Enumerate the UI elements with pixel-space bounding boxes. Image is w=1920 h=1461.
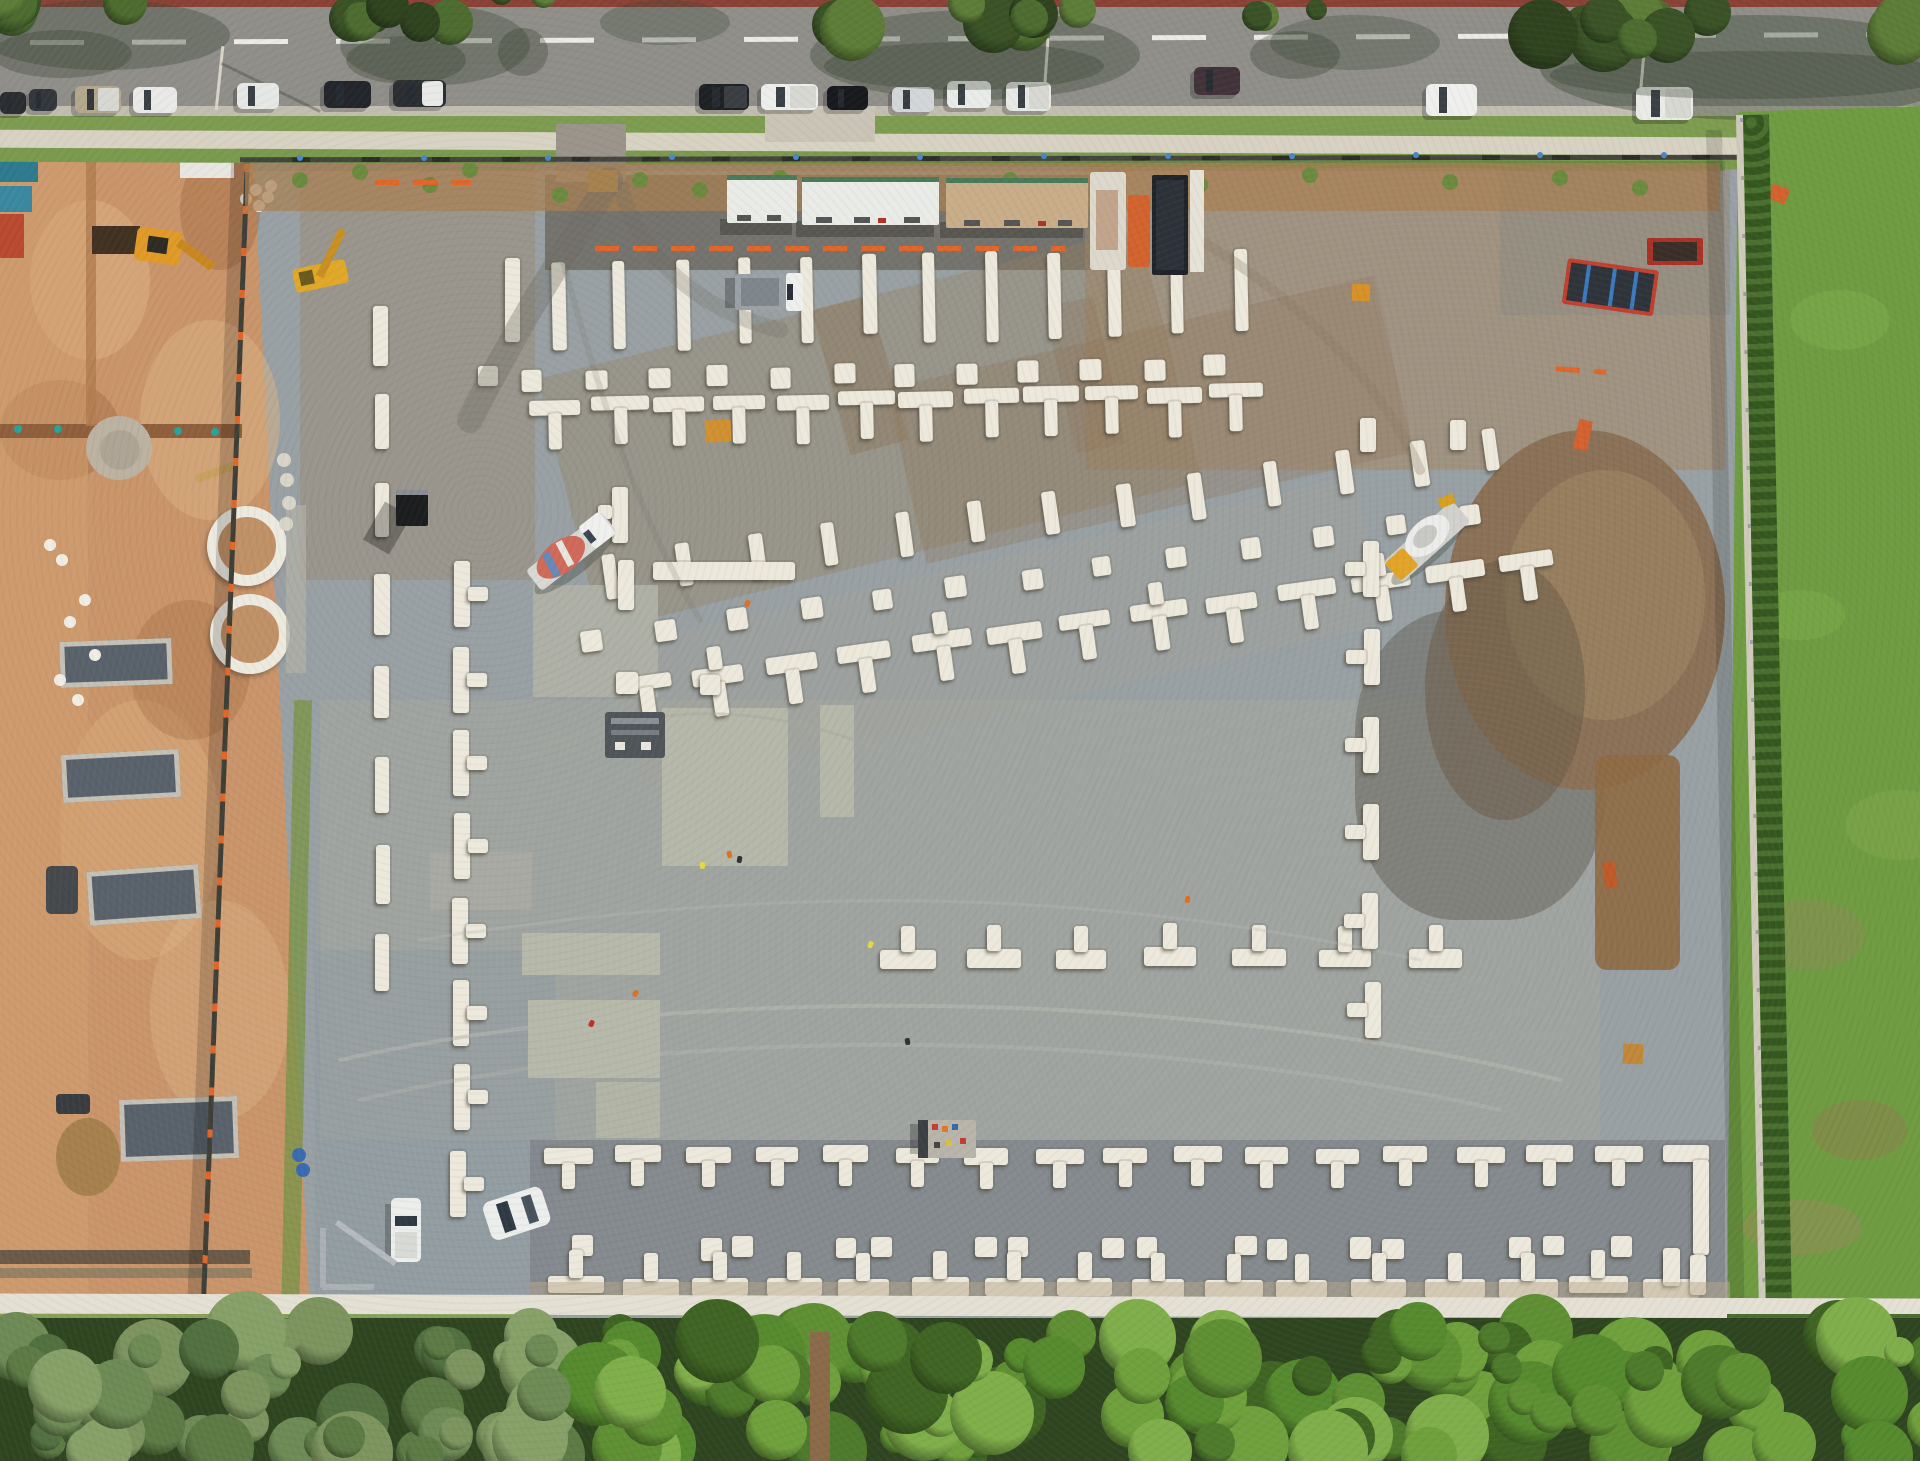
flatbed-truck-workers-part: [918, 1120, 928, 1158]
red-skip-bin-part: [1653, 242, 1697, 261]
site-trailer-2-part: [878, 218, 886, 223]
orange-plate-3: [705, 420, 732, 443]
site-trailer-3-tan-part: [1058, 220, 1072, 226]
tree-shadow: [1250, 31, 1340, 79]
car-windshield: [336, 84, 344, 105]
black-equipment-box-part: [396, 490, 428, 526]
tree-crown: [1292, 1356, 1332, 1396]
flatbed-truck-workers-part: [960, 1138, 966, 1144]
orange-plate-1: [1352, 284, 1371, 302]
site-trailer-1-part: [727, 175, 797, 180]
tree-crown: [746, 1400, 807, 1461]
car-windshield: [407, 83, 415, 104]
tree-crown: [269, 1347, 301, 1379]
barrier-rails-corner-part: [322, 1284, 374, 1290]
car-windshield: [1439, 87, 1447, 113]
car: [237, 83, 279, 109]
pipe-storage-truck-part: [1128, 195, 1150, 267]
site-trailer-1-part: [737, 215, 751, 221]
car-windshield: [144, 90, 151, 110]
site-trailer-2-part: [816, 217, 832, 223]
orange-barrier-row-1: [595, 246, 1065, 251]
tree-crown: [910, 1322, 982, 1394]
white-ute-slab-part: [395, 1232, 417, 1258]
flatbed-truck-workers-part: [932, 1124, 938, 1130]
ute-tray: [1029, 84, 1050, 109]
ute-tray: [724, 86, 747, 108]
orange-plate-2: [1623, 1044, 1644, 1065]
flatbed-truck-workers-part: [952, 1124, 958, 1130]
worker-person: [726, 851, 732, 859]
car: [324, 81, 371, 108]
car: [29, 89, 57, 111]
car-windshield: [36, 92, 40, 108]
timber-pallet-gate: [588, 170, 618, 192]
tree-crown: [1183, 1319, 1263, 1399]
tree-crown: [1194, 1423, 1235, 1461]
worker-person: [904, 1038, 910, 1046]
car-windshield: [87, 89, 94, 110]
car: [133, 87, 177, 113]
car-hood: [422, 81, 443, 106]
tree-crown: [28, 1349, 103, 1424]
tree-crown: [1715, 1353, 1772, 1410]
rebar-bending-station-part: [641, 742, 651, 750]
car: [1426, 84, 1477, 116]
worker-person: [700, 862, 705, 869]
tree-crown: [525, 1334, 558, 1367]
site-trailer-2-part: [802, 177, 939, 182]
tree-crown: [1389, 1302, 1447, 1360]
car-windshield: [7, 95, 11, 111]
tree-crown: [1114, 1348, 1170, 1404]
black-equipment-box-part: [396, 490, 428, 495]
tree-crown: [847, 1311, 907, 1371]
tree-canopy: [1242, 1, 1272, 31]
car: [827, 86, 868, 110]
site-trailer-2-part: [904, 217, 920, 223]
flatbed-truck-workers-part: [942, 1126, 948, 1132]
forest-track-gap: [810, 1332, 830, 1461]
tree-crown: [1023, 1336, 1086, 1399]
tree-crown: [517, 1367, 571, 1421]
white-ute-slab-part: [395, 1216, 417, 1226]
barrier-rails-corner-part: [320, 1228, 326, 1288]
pipe-storage-truck-part: [1156, 180, 1184, 270]
construction-site-aerial-photo: [0, 0, 1920, 1461]
ute-tray: [790, 86, 816, 108]
dump-truck-part: [787, 284, 793, 300]
car-windshield: [903, 90, 910, 109]
tree-crown: [128, 1334, 162, 1368]
tree-canopy: [1306, 0, 1327, 20]
tree-canopy: [1617, 19, 1656, 58]
tree-crown: [179, 1319, 239, 1379]
car-windshield: [776, 87, 785, 107]
tree-crown: [594, 1356, 667, 1429]
car: [1194, 67, 1240, 95]
tree-shadow: [498, 28, 548, 76]
car-windshield: [1206, 70, 1213, 92]
car-windshield: [1018, 85, 1025, 108]
rebar-bending-station-part: [611, 730, 659, 735]
site-trailer-1-part: [767, 215, 781, 221]
rebar-bending-station-part: [615, 742, 625, 750]
car-windshield: [248, 86, 255, 106]
tree-canopy: [1867, 1, 1920, 64]
tree-crown: [675, 1299, 758, 1382]
site-trailer-3-tan-part: [964, 220, 980, 226]
tree-crown: [221, 1370, 269, 1418]
tree-canopy: [1508, 0, 1578, 69]
car-windshield: [712, 87, 720, 107]
dump-truck-part: [741, 278, 779, 306]
tree-crown: [1831, 1356, 1907, 1432]
rebar-bending-station-part: [611, 718, 659, 724]
site-trailer-3-tan-part: [1004, 220, 1020, 226]
pipe-storage-truck-part: [1190, 170, 1204, 272]
flatbed-truck-workers-part: [946, 1140, 952, 1146]
site-trailer-3-tan-part: [946, 178, 1088, 183]
flatbed-truck-workers-part: [934, 1142, 940, 1148]
ute-tray: [98, 88, 119, 111]
orange-barrier-row-2: [375, 180, 471, 185]
car: [892, 87, 934, 112]
site-trailer-2-part: [854, 217, 870, 223]
car: [0, 92, 26, 114]
site-trailer-3-tan-part: [1038, 221, 1046, 226]
tree-crown: [1625, 1351, 1665, 1391]
tree-crown: [1571, 1385, 1622, 1436]
pipe-storage-truck-part: [1096, 190, 1118, 250]
car-windshield: [838, 89, 845, 107]
